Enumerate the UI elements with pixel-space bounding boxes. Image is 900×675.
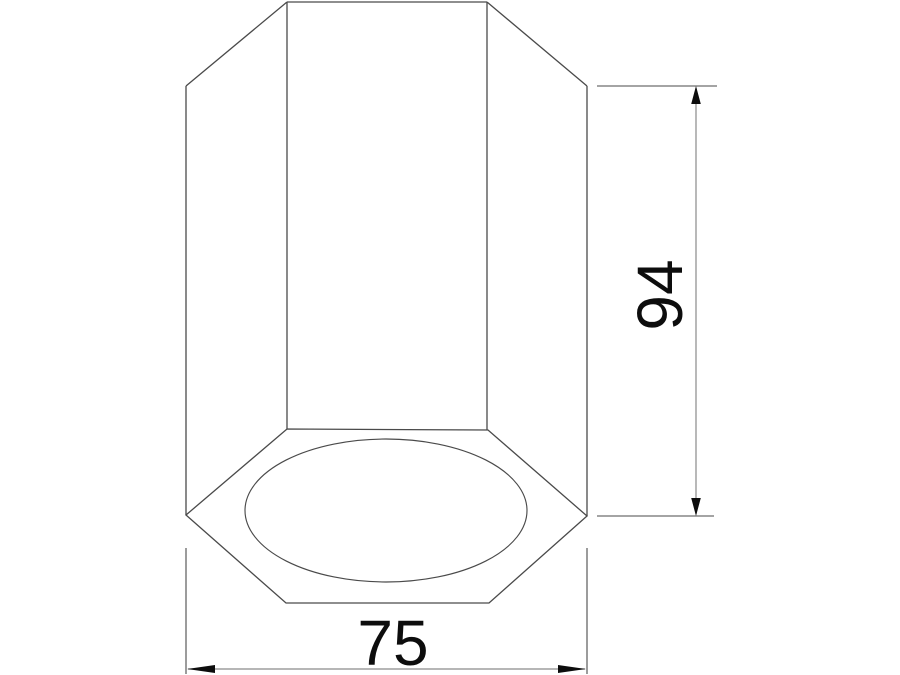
technical-drawing-canvas: 94 75 [0,0,900,675]
prism-top-right-slant-edge [487,2,587,86]
height-dimension: 94 [597,86,717,516]
width-arrow-left-icon [187,665,215,673]
prism-body [186,2,587,603]
width-dimension-label: 75 [357,607,428,675]
hex-prism-drawing: 94 75 [0,0,900,675]
width-dimension: 75 [186,548,587,675]
light-opening-ellipse [245,439,527,582]
prism-top-left-slant-edge [186,2,287,86]
height-dimension-label: 94 [624,259,696,330]
height-arrow-down-icon [691,498,701,516]
width-arrow-right-icon [558,665,586,673]
height-arrow-up-icon [691,86,701,104]
